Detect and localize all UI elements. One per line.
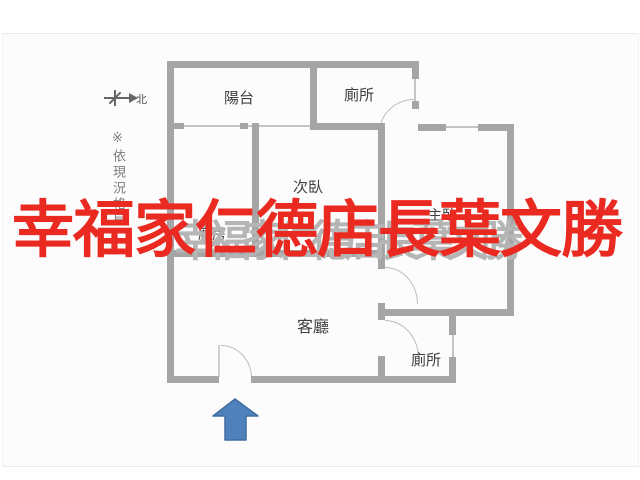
wall-toilet-bottom-right-b [449,357,456,383]
wall-top [167,61,418,68]
watermark-text: 幸福家仁德店長葉文勝 [12,199,622,261]
wall-right-wing-a [418,124,446,131]
entrance-arrow [212,398,260,442]
wall-toilet-top-right-a [412,61,419,79]
toilet-top-window-line [414,79,416,101]
room-label-balcony: 陽台 [224,87,254,108]
wall-balcony-window-jamb [240,123,248,129]
compass-north-label: 北 [136,91,147,107]
master-window-line [446,126,478,128]
toilet-bottom-window-line [452,335,454,357]
entrance-door-leaf [218,345,220,377]
wall-bottom-left [167,376,219,383]
room-label-toilet-top: 廁所 [344,84,374,105]
floor-plan: 北 ※依現況格局 陽台 廁所 次臥 主臥 廚房 客廳 廁所 幸福家仁德店長葉文勝… [0,0,640,480]
wall-bottom-right [251,376,456,383]
wall-toilet-bottom-right-a [449,316,456,335]
wall-toilet-top-bottom [310,123,382,130]
wall-center-vertical-mid [378,303,385,320]
wall-toilet-top-right-b [412,101,419,109]
wall-balcony-sill-jamb [174,123,184,129]
wall-master-bottom [378,309,514,316]
wall-center-vertical-lower [378,356,385,383]
entrance-arrow-shape [213,399,258,440]
room-label-toilet-bottom: 廁所 [411,349,441,370]
wall-balcony-toilet-divider [310,61,317,126]
room-label-living-room: 客廳 [297,313,329,337]
